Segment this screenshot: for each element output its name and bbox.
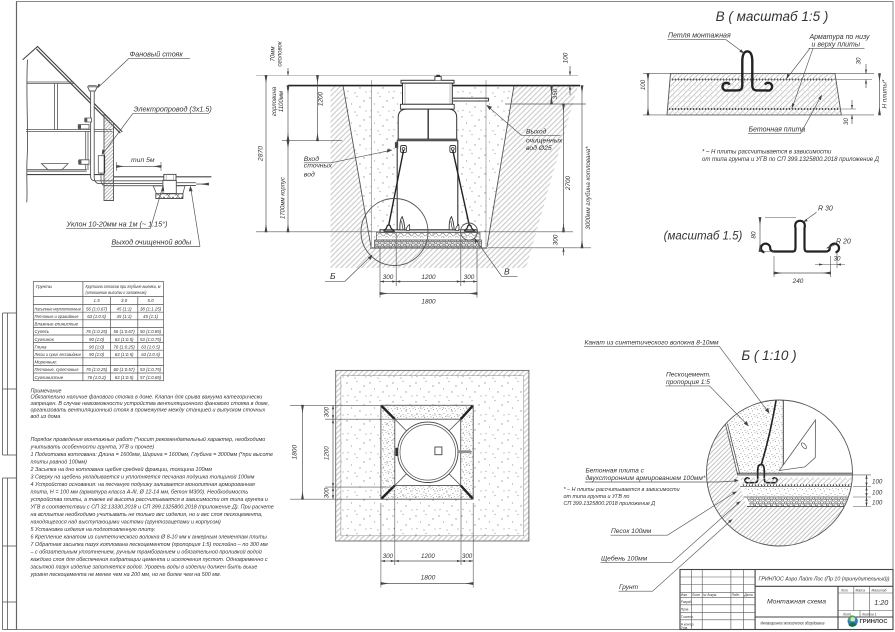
- svg-text:45 (1:1): 45 (1:1): [117, 306, 133, 311]
- svg-text:45 (1:1): 45 (1:1): [143, 314, 159, 319]
- svg-text:В: В: [504, 267, 510, 277]
- svg-text:1800: 1800: [292, 445, 299, 460]
- svg-text:30: 30: [856, 57, 863, 64]
- svg-text:Масса: Масса: [856, 588, 866, 592]
- svg-text:тип 5м: тип 5м: [131, 157, 155, 164]
- svg-text:1200: 1200: [421, 553, 435, 560]
- svg-text:100: 100: [640, 79, 647, 90]
- svg-text:устройства плиты, а также её в: устройства плиты, а также её высота расс…: [30, 496, 268, 503]
- svg-text:60 (1:0.57): 60 (1:0.57): [113, 367, 135, 372]
- svg-text:R 20: R 20: [836, 239, 851, 246]
- svg-text:Масштаб: Масштаб: [872, 588, 887, 592]
- svg-text:Насыпные неуплотненные: Насыпные неуплотненные: [35, 306, 82, 311]
- svg-text:Примечание: Примечание: [31, 388, 62, 394]
- svg-text:Суглинок: Суглинок: [35, 337, 55, 342]
- svg-text:Выход: Выход: [526, 128, 547, 136]
- svg-text:– с обязательным уплотнением,: – с обязательным уплотнением, ручным тра…: [30, 549, 262, 556]
- svg-text:на всплытие необходимо учитыв: на всплытие необходимо учитывать не толь…: [31, 512, 263, 518]
- svg-text:7 Обратная засыпка пазух котл: 7 Обратная засыпка пазух котлована песко…: [31, 541, 269, 548]
- svg-text:300: 300: [462, 553, 473, 560]
- svg-text:5 Установка изделия на подгот: 5 Установка изделия на подготовленную пл…: [31, 527, 156, 533]
- svg-text:1700мм корпус: 1700мм корпус: [281, 177, 287, 219]
- svg-text:240: 240: [792, 278, 804, 285]
- svg-text:57 (1:0.65): 57 (1:0.65): [140, 375, 162, 380]
- svg-text:оголовок: оголовок: [278, 40, 284, 66]
- svg-text:СП 399.1325800.2018 приложение: СП 399.1325800.2018 приложение Д: [564, 501, 656, 507]
- svg-text:Б: Б: [330, 271, 336, 281]
- svg-text:сточных: сточных: [304, 162, 333, 169]
- svg-text:Обязательно наличие фанового с: Обязательно наличие фанового стояка в до…: [31, 395, 263, 401]
- svg-text:УГВ в соответствии с СП 32.133: УГВ в соответствии с СП 32.13330.2018 и …: [30, 505, 274, 511]
- svg-text:300: 300: [383, 274, 394, 281]
- svg-text:В ( масштаб 1:5 ): В ( масштаб 1:5 ): [716, 9, 829, 24]
- svg-text:1200: 1200: [421, 274, 436, 281]
- svg-text:76 (1:0.2): 76 (1:0.2): [87, 375, 106, 380]
- svg-text:45 (1:1): 45 (1:1): [117, 314, 133, 319]
- svg-text:76 (1:0.25): 76 (1:0.25): [113, 344, 135, 349]
- svg-text:Разраб.: Разраб.: [681, 600, 693, 604]
- svg-text:63 (1:0.5): 63 (1:0.5): [115, 337, 134, 342]
- svg-text:и верху плиты: и верху плиты: [812, 42, 861, 49]
- svg-text:50 (1:0.85): 50 (1:0.85): [140, 329, 162, 334]
- svg-text:100: 100: [872, 490, 883, 497]
- svg-text:30: 30: [834, 256, 841, 263]
- svg-text:Порядок проведения монтажных р: Порядок проведения монтажных работ (*нос…: [31, 436, 266, 443]
- svg-text:300: 300: [464, 274, 475, 281]
- svg-text:Монтажная схема: Монтажная схема: [767, 599, 826, 606]
- svg-text:двухсторонним армированием 100: двухсторонним армированием 100мм*: [586, 474, 706, 482]
- svg-text:Пескоцемент.: Пескоцемент.: [666, 372, 711, 379]
- svg-text:Н плиты*: Н плиты*: [882, 79, 889, 108]
- svg-text:63 (1:0.5): 63 (1:0.5): [141, 352, 160, 357]
- svg-text:2 Засыпка на дно котлована ще: 2 Засыпка на дно котлована щебня средней…: [30, 466, 213, 473]
- svg-text:1800: 1800: [421, 575, 436, 582]
- svg-text:3000мм глубина котлована*: 3000мм глубина котлована*: [585, 146, 592, 230]
- svg-text:1800: 1800: [421, 299, 436, 306]
- svg-text:запрещен. В случае невозможнос: запрещен. В случае невозможности устройс…: [30, 400, 270, 407]
- svg-text:горловина: горловина: [272, 86, 278, 116]
- svg-text:Утв.: Утв.: [681, 626, 688, 630]
- svg-text:Грунт: Грунт: [619, 584, 639, 591]
- svg-text:Т.контр.: Т.контр.: [681, 615, 694, 619]
- svg-text:Канат из синтетического волокн: Канат из синтетического волокна 8-10мм: [585, 340, 719, 347]
- svg-text:* – Н плиты рассчитывается в з: * – Н плиты рассчитывается в зависимости: [564, 487, 680, 493]
- svg-text:учитывать особенности грунта,: учитывать особенности грунта, УГВ и проч…: [30, 445, 155, 451]
- svg-text:от типа грунта и УГВ по СП 399: от типа грунта и УГВ по СП 399.1325800.2…: [702, 157, 880, 163]
- svg-text:2870: 2870: [258, 146, 265, 162]
- svg-text:Б ( 1:10 ): Б ( 1:10 ): [741, 348, 796, 363]
- svg-text:Бетонная плита: Бетонная плита: [749, 127, 806, 134]
- svg-text:1100мм: 1100мм: [279, 91, 285, 112]
- svg-text:Лист: Лист: [842, 612, 852, 616]
- svg-text:5.0: 5.0: [148, 298, 155, 303]
- svg-text:Щебень 100мм: Щебень 100мм: [601, 555, 648, 563]
- svg-text:вод из дома: вод из дома: [31, 414, 61, 420]
- svg-text:300: 300: [553, 234, 560, 245]
- svg-text:Грунты: Грунты: [36, 284, 53, 289]
- svg-text:Бетонная плита с: Бетонная плита с: [586, 468, 645, 475]
- svg-text:56 (1:0.67): 56 (1:0.67): [86, 306, 108, 311]
- svg-text:пропорция 1:5: пропорция 1:5: [666, 379, 710, 386]
- svg-text:63 (1:0.5): 63 (1:0.5): [115, 375, 134, 380]
- svg-text:вод Ø25: вод Ø25: [526, 144, 552, 152]
- svg-text:53 (1:0.75): 53 (1:0.75): [140, 367, 162, 372]
- svg-text:1200: 1200: [318, 91, 325, 106]
- svg-text:Крутизна откосов при глубине в: Крутизна откосов при глубине выемки, м: [86, 284, 161, 289]
- svg-text:76 (1:0.25): 76 (1:0.25): [86, 367, 108, 372]
- svg-text:30: 30: [843, 118, 850, 125]
- svg-text:2700: 2700: [565, 175, 572, 191]
- svg-text:Подп.: Подп.: [732, 593, 741, 597]
- svg-text:100: 100: [872, 479, 883, 486]
- svg-text:Арматура по низу: Арматура по низу: [809, 34, 871, 41]
- svg-text:90 (1:0): 90 (1:0): [89, 337, 105, 342]
- svg-text:Супесь: Супесь: [35, 329, 50, 334]
- svg-text:Песчаные и гравийные: Песчаные и гравийные: [35, 314, 80, 319]
- svg-text:Песок 100мм: Песок 100мм: [611, 528, 652, 535]
- svg-text:Дата: Дата: [743, 593, 753, 597]
- svg-text:70мм: 70мм: [271, 47, 277, 62]
- svg-text:Суглинистые: Суглинистые: [35, 375, 64, 380]
- svg-text:(отношение высоты к заложению): (отношение высоты к заложению): [86, 290, 147, 295]
- svg-text:R 30: R 30: [818, 206, 833, 213]
- svg-text:ГРИНЛОС Аэро Лайт Лос (Пр 10 (: ГРИНЛОС Аэро Лайт Лос (Пр 10 (принудител…: [759, 576, 890, 583]
- svg-text:* – Н плиты рассчитывается в з: * – Н плиты рассчитывается в зависимости: [702, 150, 832, 156]
- svg-text:80: 80: [751, 231, 758, 239]
- svg-text:6 Крепление канатом из синтет: 6 Крепление канатом из синтетического во…: [31, 535, 267, 541]
- svg-text:3 Сверху на щебень укладывает: 3 Сверху на щебень укладывается и уплотн…: [31, 474, 255, 481]
- svg-text:от типа грунта и УГВ по: от типа грунта и УГВ по: [564, 494, 630, 500]
- svg-text:56 (1:0.67): 56 (1:0.67): [113, 329, 135, 334]
- svg-text:Влажные глинистые: Влажные глинистые: [35, 322, 79, 327]
- svg-text:ГРИНЛОС: ГРИНЛОС: [860, 619, 888, 625]
- svg-text:Пров.: Пров.: [681, 607, 690, 611]
- svg-text:Листов 1: Листов 1: [861, 612, 876, 616]
- svg-text:Электропровод (3х1.5): Электропровод (3х1.5): [134, 105, 212, 114]
- svg-text:1.5: 1.5: [94, 298, 101, 303]
- svg-text:90 (1:0): 90 (1:0): [89, 352, 105, 357]
- svg-text:находящегося над выступающими: находящегося над выступающими частями (г…: [31, 520, 222, 526]
- svg-text:90 (1:0): 90 (1:0): [89, 344, 105, 349]
- svg-text:3.0: 3.0: [121, 298, 128, 303]
- svg-text:300: 300: [383, 553, 394, 560]
- svg-text:вод: вод: [304, 171, 315, 179]
- svg-text:4 Устройство основания: на пе: 4 Устройство основания: на песчаную поду…: [31, 481, 255, 488]
- svg-text:38 (1:1.25): 38 (1:1.25): [140, 306, 162, 311]
- svg-text:1:20: 1:20: [874, 598, 888, 607]
- svg-text:плиты равной 100мм): плиты равной 100мм): [31, 459, 88, 466]
- svg-text:(масштаб 1.5): (масштаб 1.5): [664, 231, 743, 243]
- svg-text:засыпкой пазух изделие заполня: засыпкой пазух изделие заполняется водой…: [30, 564, 258, 571]
- svg-text:100: 100: [872, 500, 883, 507]
- svg-text:организовать вентиляционный ст: организовать вентиляционный стояк в пром…: [31, 407, 266, 414]
- svg-text:76 (1:0.25): 76 (1:0.25): [86, 329, 108, 334]
- svg-text:Инновационное экологическое об: Инновационное экологическое оборудование: [761, 620, 825, 625]
- svg-text:Выход очищенной воды: Выход очищенной воды: [112, 238, 193, 247]
- svg-text:уровня пескоцемента не менее ч: уровня пескоцемента не менее чем на 200 …: [30, 572, 222, 578]
- svg-text:Лит.: Лит.: [840, 588, 849, 592]
- svg-text:Лист: Лист: [691, 593, 701, 597]
- svg-text:100: 100: [563, 52, 570, 63]
- svg-text:300: 300: [324, 406, 331, 417]
- svg-text:Изм.: Изм.: [681, 593, 688, 597]
- svg-text:№ докум.: № докум.: [703, 593, 717, 597]
- svg-text:53 (1:0.75): 53 (1:0.75): [140, 337, 162, 342]
- svg-text:1200: 1200: [324, 446, 331, 460]
- svg-text:63 (1:0.5): 63 (1:0.5): [115, 352, 134, 357]
- svg-text:Фановый стояк: Фановый стояк: [130, 50, 184, 59]
- svg-text:плита, Н = 100 мм (арматура кл: плита, Н = 100 мм (арматура класса А-III…: [31, 490, 249, 496]
- svg-text:Петля монтажная: Петля монтажная: [668, 33, 731, 40]
- svg-text:63 (1:0.5): 63 (1:0.5): [141, 344, 160, 349]
- svg-text:Глина: Глина: [35, 344, 48, 349]
- svg-text:каждого слоя для обеспечения г: каждого слоя для обеспечения гидратации …: [31, 557, 268, 563]
- svg-text:Лессы и сухие лессовидные: Лессы и сухие лессовидные: [34, 352, 82, 357]
- svg-text:Песчаные, супесчаные: Песчаные, супесчаные: [35, 367, 80, 372]
- svg-text:1 Подготовка котлована: Длина: 1 Подготовка котлована: Длина = 1600мм, …: [31, 452, 273, 458]
- svg-text:350: 350: [552, 88, 559, 99]
- svg-text:63 (1:0.5): 63 (1:0.5): [87, 314, 106, 319]
- svg-text:Моренные:: Моренные:: [35, 360, 58, 365]
- svg-text:300: 300: [324, 487, 331, 498]
- svg-text:очищенных: очищенных: [526, 138, 563, 145]
